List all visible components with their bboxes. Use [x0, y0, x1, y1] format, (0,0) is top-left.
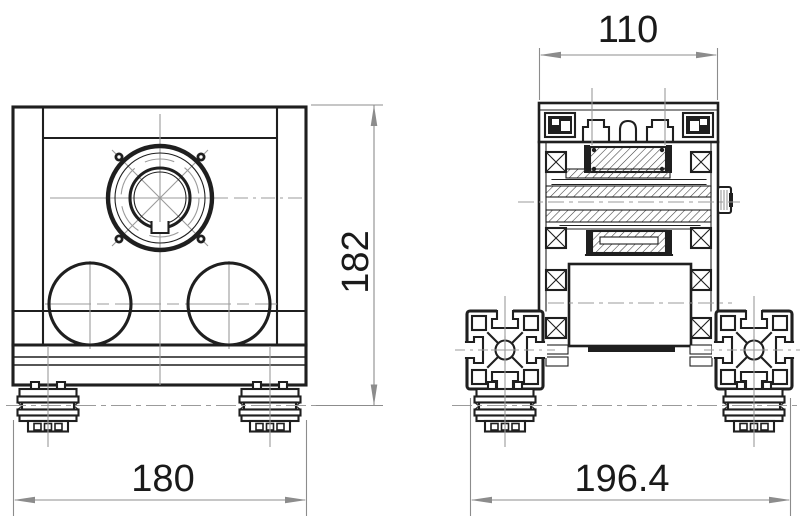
arrow-icon: [371, 105, 378, 126]
bearing-icon: [546, 270, 566, 290]
extension-lines: [540, 48, 718, 100]
bearing-icon: [546, 152, 566, 172]
arrow-icon: [540, 52, 562, 59]
shaft-upper-wall: [546, 186, 711, 197]
shaft-lower-wall: [546, 210, 711, 222]
bearing-icon: [691, 228, 711, 248]
bearing-icon: [691, 152, 711, 172]
bearing-icon: [546, 228, 566, 248]
top-extrusion-plate: [539, 103, 718, 142]
drawing-canvas: 180 182 110 196.4: [0, 0, 800, 522]
arrow-icon: [471, 497, 493, 504]
arrow-icon: [285, 497, 307, 504]
side-top-width-dimension-label: 110: [598, 9, 659, 51]
bearing-icon: [546, 318, 566, 338]
arrow-icon: [696, 52, 718, 59]
arrow-icon: [769, 497, 791, 504]
dimension-side-top-width: 110: [540, 9, 718, 100]
arrow-icon: [371, 385, 378, 406]
front-view: [6, 107, 383, 447]
front-height-dimension-label: 182: [335, 230, 377, 293]
technical-drawing: 180 182 110 196.4: [0, 0, 800, 522]
arrow-icon: [14, 497, 36, 504]
motor-block: [546, 264, 712, 366]
dimension-front-width: 180: [14, 420, 307, 516]
side-view: [452, 88, 800, 447]
drive-shaft-section: [546, 145, 711, 255]
side-bottom-width-dimension-label: 196.4: [574, 458, 669, 500]
bearing-icon: [691, 270, 711, 290]
upper-pulley: [590, 147, 666, 172]
dimension-front-height: 182: [311, 105, 383, 406]
front-width-dimension-label: 180: [131, 458, 194, 500]
shaft-end-stub: [718, 187, 733, 213]
bearing-icon: [691, 318, 711, 338]
